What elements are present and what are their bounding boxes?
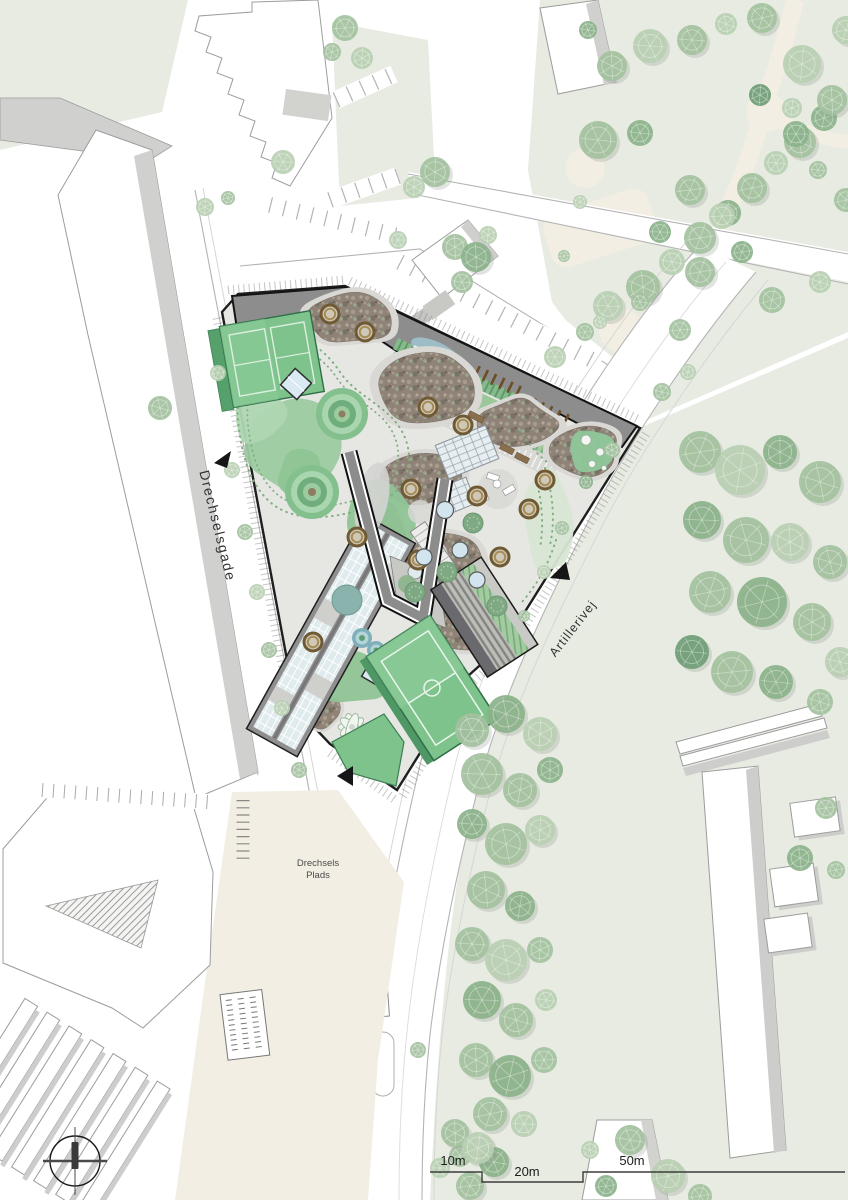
- building-east-small: [764, 913, 812, 953]
- site-plan-page: Drechselsgade Artillerivej Drechsels Pla…: [0, 0, 848, 1200]
- ring-play-feature: [285, 465, 339, 519]
- bike-rack-area: [220, 990, 270, 1061]
- water-play-feature: [332, 585, 362, 615]
- scale-tick-10m: 10m: [440, 1153, 465, 1168]
- plaza-label-line2: Plads: [306, 870, 330, 881]
- building-east-small: [770, 863, 819, 907]
- plaza-surface: [175, 790, 404, 1200]
- parking-row: [270, 205, 398, 236]
- scale-tick-50m: 50m: [619, 1153, 644, 1168]
- row-houses: [0, 998, 174, 1200]
- site-plan-canvas: Drechselsgade Artillerivej Drechsels Pla…: [0, 0, 848, 1200]
- plaza-label-line1: Drechsels: [297, 858, 339, 869]
- scale-tick-20m: 20m: [514, 1164, 539, 1179]
- plaza-drechsels-plads: [175, 790, 404, 1200]
- ring-play-feature: [316, 388, 368, 440]
